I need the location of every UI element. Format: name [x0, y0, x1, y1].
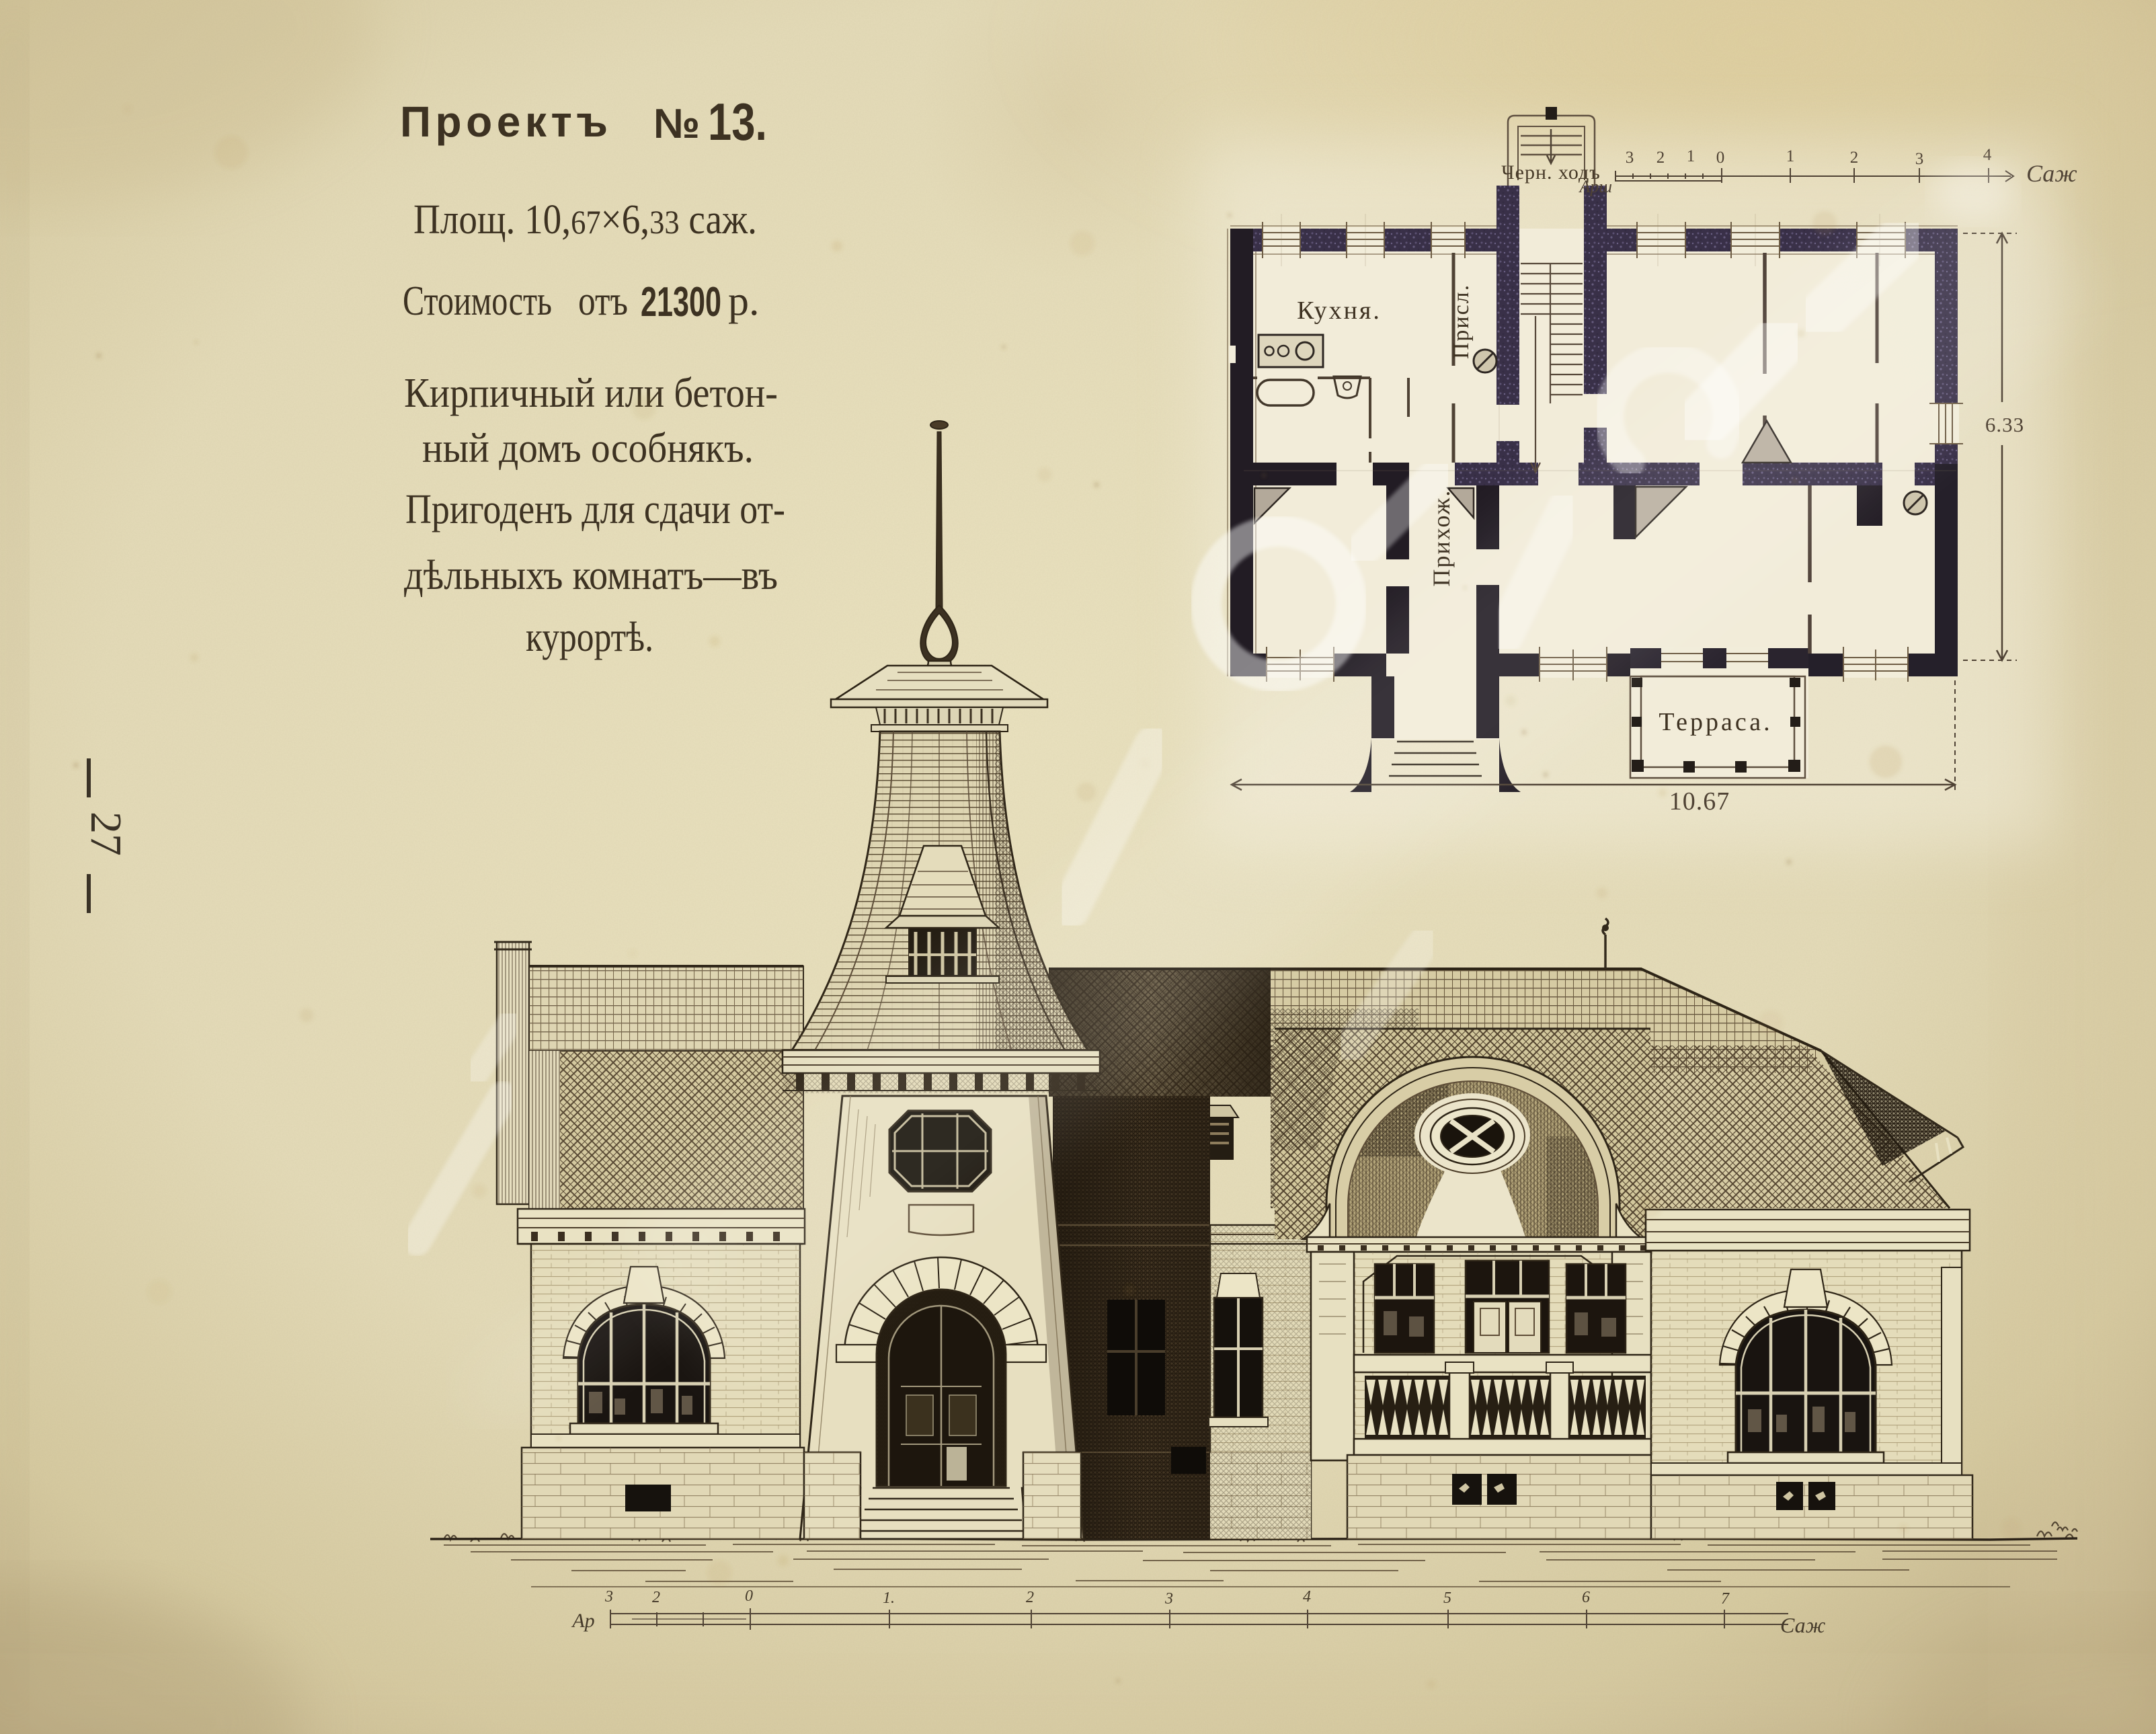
- svg-text:2: 2: [1850, 149, 1859, 167]
- svg-text:Ар: Ар: [571, 1610, 594, 1632]
- svg-text:3: 3: [1626, 149, 1634, 167]
- svg-text:отъ: отъ: [578, 278, 628, 324]
- svg-text:р.: р.: [728, 278, 760, 324]
- svg-text:Кухня.: Кухня.: [1297, 297, 1382, 325]
- svg-text:5: 5: [1443, 1589, 1451, 1607]
- svg-text:13.: 13.: [708, 92, 767, 151]
- svg-text:7: 7: [1721, 1590, 1730, 1608]
- svg-text:1: 1: [1687, 147, 1695, 165]
- svg-text:Терраса.: Терраса.: [1659, 708, 1772, 736]
- svg-text:1: 1: [1786, 147, 1795, 165]
- svg-text:Площ. 10,67×6,33 саж.: Площ. 10,67×6,33 саж.: [413, 197, 757, 243]
- svg-text:2: 2: [1026, 1589, 1034, 1606]
- svg-text:27: 27: [81, 812, 130, 856]
- svg-text:3: 3: [1164, 1590, 1173, 1608]
- svg-text:Пригоденъ для сдачи от-: Пригоденъ для сдачи от-: [405, 487, 785, 533]
- svg-text:Арш: Арш: [1578, 177, 1612, 196]
- svg-text:1.: 1.: [883, 1589, 895, 1607]
- svg-text:курортѣ.: курортѣ.: [526, 615, 653, 660]
- svg-text:2: 2: [652, 1589, 660, 1606]
- svg-text:№: №: [653, 101, 700, 147]
- svg-text:Кирпичный или бетон-: Кирпичный или бетон-: [404, 370, 778, 416]
- svg-text:0: 0: [745, 1587, 753, 1605]
- svg-text:3: 3: [1915, 150, 1924, 168]
- svg-text:21300: 21300: [641, 279, 721, 325]
- svg-text:2: 2: [1656, 149, 1665, 167]
- svg-text:10.67: 10.67: [1669, 787, 1730, 816]
- svg-text:Стоимость: Стоимость: [403, 278, 552, 324]
- svg-text:Саж: Саж: [2026, 160, 2077, 187]
- svg-text:дѣльныхъ комнатъ—въ: дѣльныхъ комнатъ—въ: [404, 553, 778, 598]
- svg-text:6: 6: [1582, 1589, 1590, 1606]
- svg-text:3: 3: [604, 1588, 613, 1606]
- svg-text:6.33: 6.33: [1985, 413, 2024, 436]
- svg-text:Саж: Саж: [1780, 1613, 1826, 1637]
- svg-text:4: 4: [1303, 1588, 1311, 1606]
- svg-text:0: 0: [1716, 149, 1725, 167]
- svg-text:Присл.: Присл.: [1449, 284, 1474, 359]
- svg-text:ный домъ особнякъ.: ный домъ особнякъ.: [422, 426, 754, 471]
